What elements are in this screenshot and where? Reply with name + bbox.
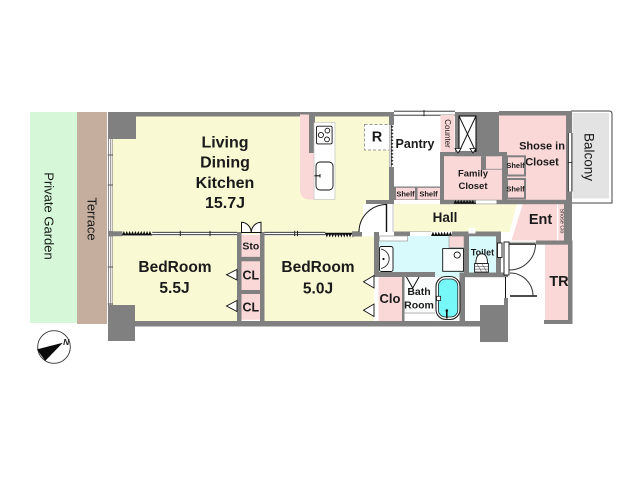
svg-text:CL: CL — [242, 301, 259, 315]
svg-text:Private Garden: Private Garden — [42, 172, 57, 259]
svg-text:Shelf: Shelf — [506, 185, 525, 194]
svg-text:Dining: Dining — [200, 155, 250, 172]
svg-text:Shose in: Shose in — [519, 141, 565, 153]
svg-text:Balcony: Balcony — [582, 133, 597, 181]
svg-text:15.7J: 15.7J — [205, 195, 245, 212]
svg-text:BedRoom: BedRoom — [281, 259, 354, 276]
svg-text:Family: Family — [458, 169, 489, 180]
svg-text:Counter: Counter — [443, 119, 452, 148]
svg-text:Living: Living — [201, 135, 248, 152]
svg-text:Clo: Clo — [380, 291, 401, 306]
svg-text:Terrace: Terrace — [85, 197, 100, 240]
svg-text:Closet: Closet — [458, 181, 488, 192]
svg-text:Closet: Closet — [525, 157, 559, 169]
svg-text:TR: TR — [549, 274, 569, 290]
svg-text:Ent: Ent — [529, 212, 553, 228]
svg-text:Shelf: Shelf — [506, 161, 525, 170]
svg-text:R: R — [372, 130, 383, 146]
svg-text:Shose Clo: Shose Clo — [558, 209, 564, 234]
svg-text:Bath: Bath — [407, 286, 430, 298]
svg-text:Hall: Hall — [433, 210, 458, 225]
svg-text:CL: CL — [242, 269, 259, 283]
svg-text:Shelf: Shelf — [396, 190, 415, 199]
svg-text:5.0J: 5.0J — [303, 281, 333, 298]
svg-text:N: N — [63, 337, 70, 347]
svg-text:Room: Room — [404, 300, 434, 312]
svg-text:BedRoom: BedRoom — [138, 259, 211, 276]
svg-text:Pantry: Pantry — [396, 137, 435, 151]
svg-text:Shelf: Shelf — [419, 190, 438, 199]
svg-text:5.5J: 5.5J — [159, 280, 189, 297]
svg-text:Kitchen: Kitchen — [196, 175, 255, 192]
svg-text:Sto: Sto — [242, 241, 259, 253]
